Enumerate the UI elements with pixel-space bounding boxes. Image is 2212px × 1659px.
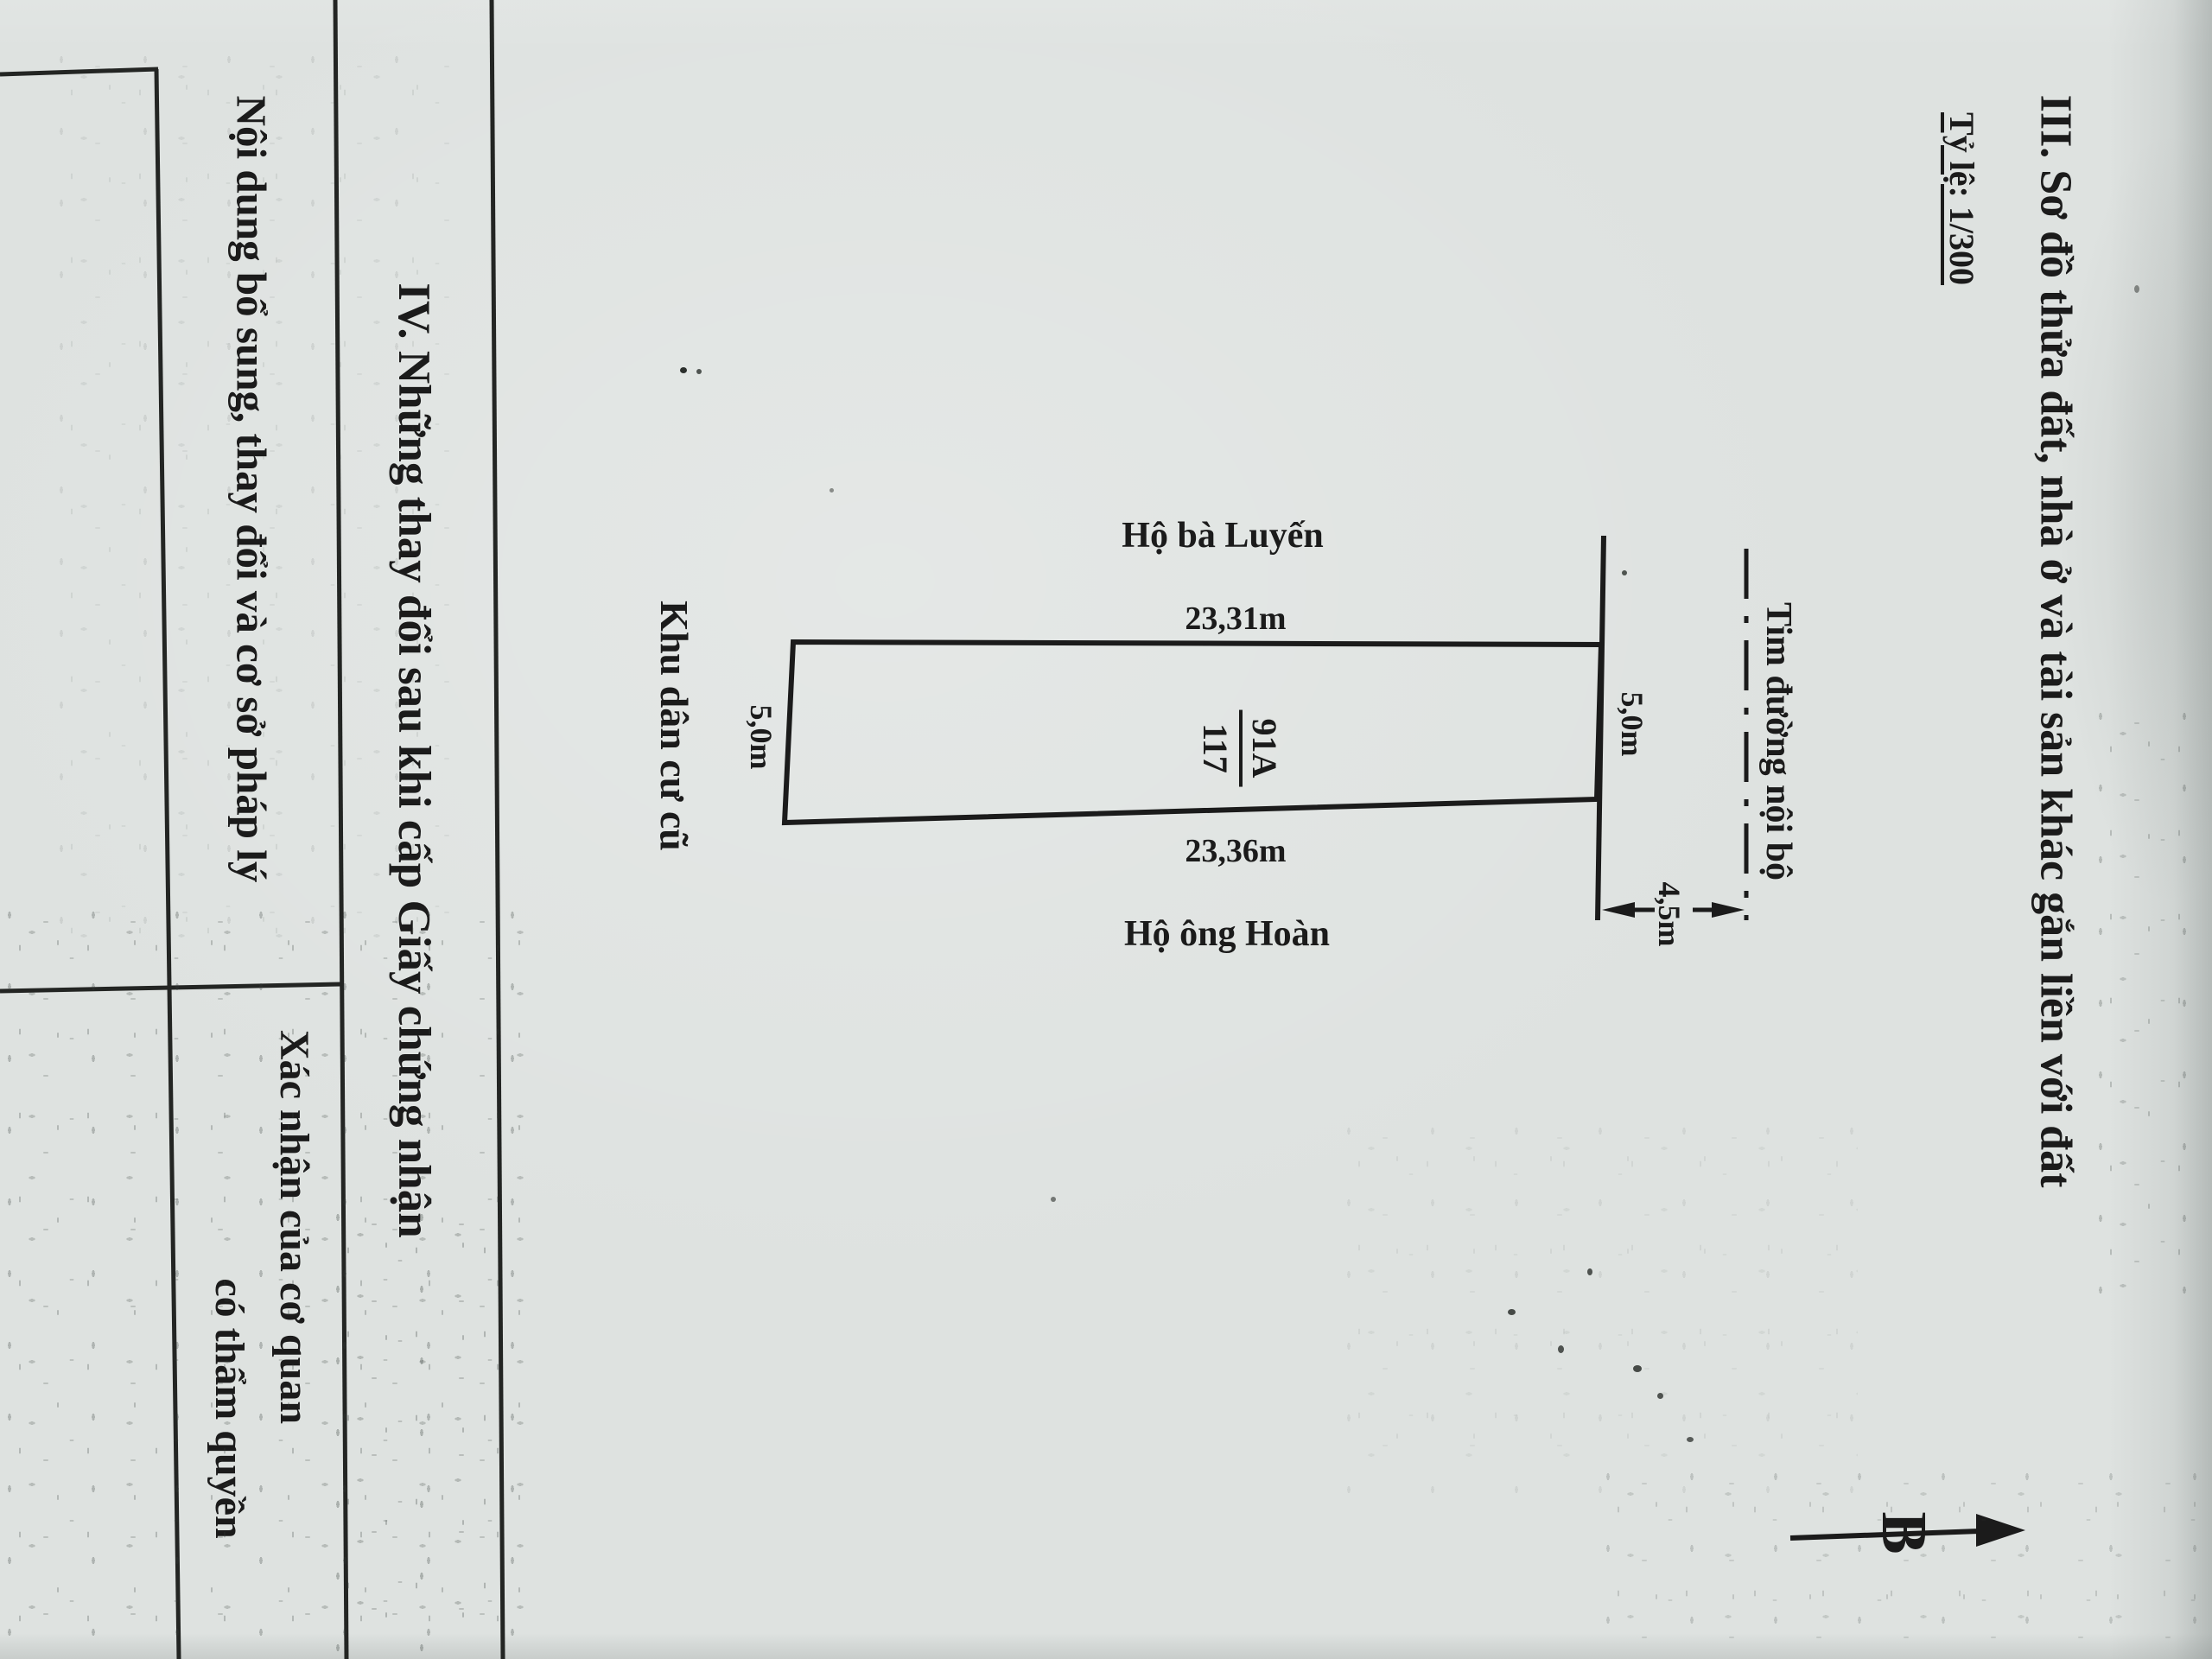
parcel-denominator: 117 [1195,710,1239,787]
scanned-land-certificate-page: III. Sơ đồ thửa đất, nhà ở và tài sản kh… [0,0,2212,1659]
dim-arrow-right-head [1712,902,1745,918]
north-arrow-head [1976,1514,2025,1547]
section-divider-line [492,0,503,1659]
parcel-number-fraction: 91A 117 [1195,710,1285,787]
scale-label: Tỷ lệ: 1/300 [1943,112,1980,285]
parcel-outline [785,642,1601,823]
table-col-confirm-header-line1: Xác nhận của cơ quan [272,1030,315,1424]
neighbor-top-label: Hộ bà Luyến [1122,517,1323,555]
table-header-border [156,69,179,1659]
diagram-linework [0,0,2212,1659]
section-iv-heading: IV. Những thay đổi sau khi cấp Giấy chứn… [389,283,437,1237]
neighbor-bottom-label: Hộ ông Hoàn [1124,915,1330,953]
north-label: B [1869,1511,1936,1554]
road-centerline-label: Tim đường nội bộ [1759,602,1797,880]
top-length-label: 23,31m [1185,602,1286,637]
parcel-number: 91A [1239,710,1285,787]
section-iii-heading: III. Sơ đồ thửa đất, nhà ở và tài sản kh… [2031,95,2079,1188]
road-boundary-line [1598,536,1604,920]
right-width-label: 5,0m [1615,692,1648,757]
road-offset-label: 4,5m [1652,882,1685,947]
left-width-label: 5,0m [744,705,777,770]
table-top-border [335,0,346,1659]
table-col-confirm-header-line2: có thẩm quyền [207,1278,251,1538]
bottom-length-label: 23,36m [1185,835,1286,869]
old-residential-area-label: Khu dân cư cũ [653,601,695,851]
table-col-content-header: Nội dung bổ sung, thay đổi và cơ sở pháp… [229,96,273,883]
dim-arrow-left-head [1602,902,1635,918]
table-left-border [0,69,158,74]
